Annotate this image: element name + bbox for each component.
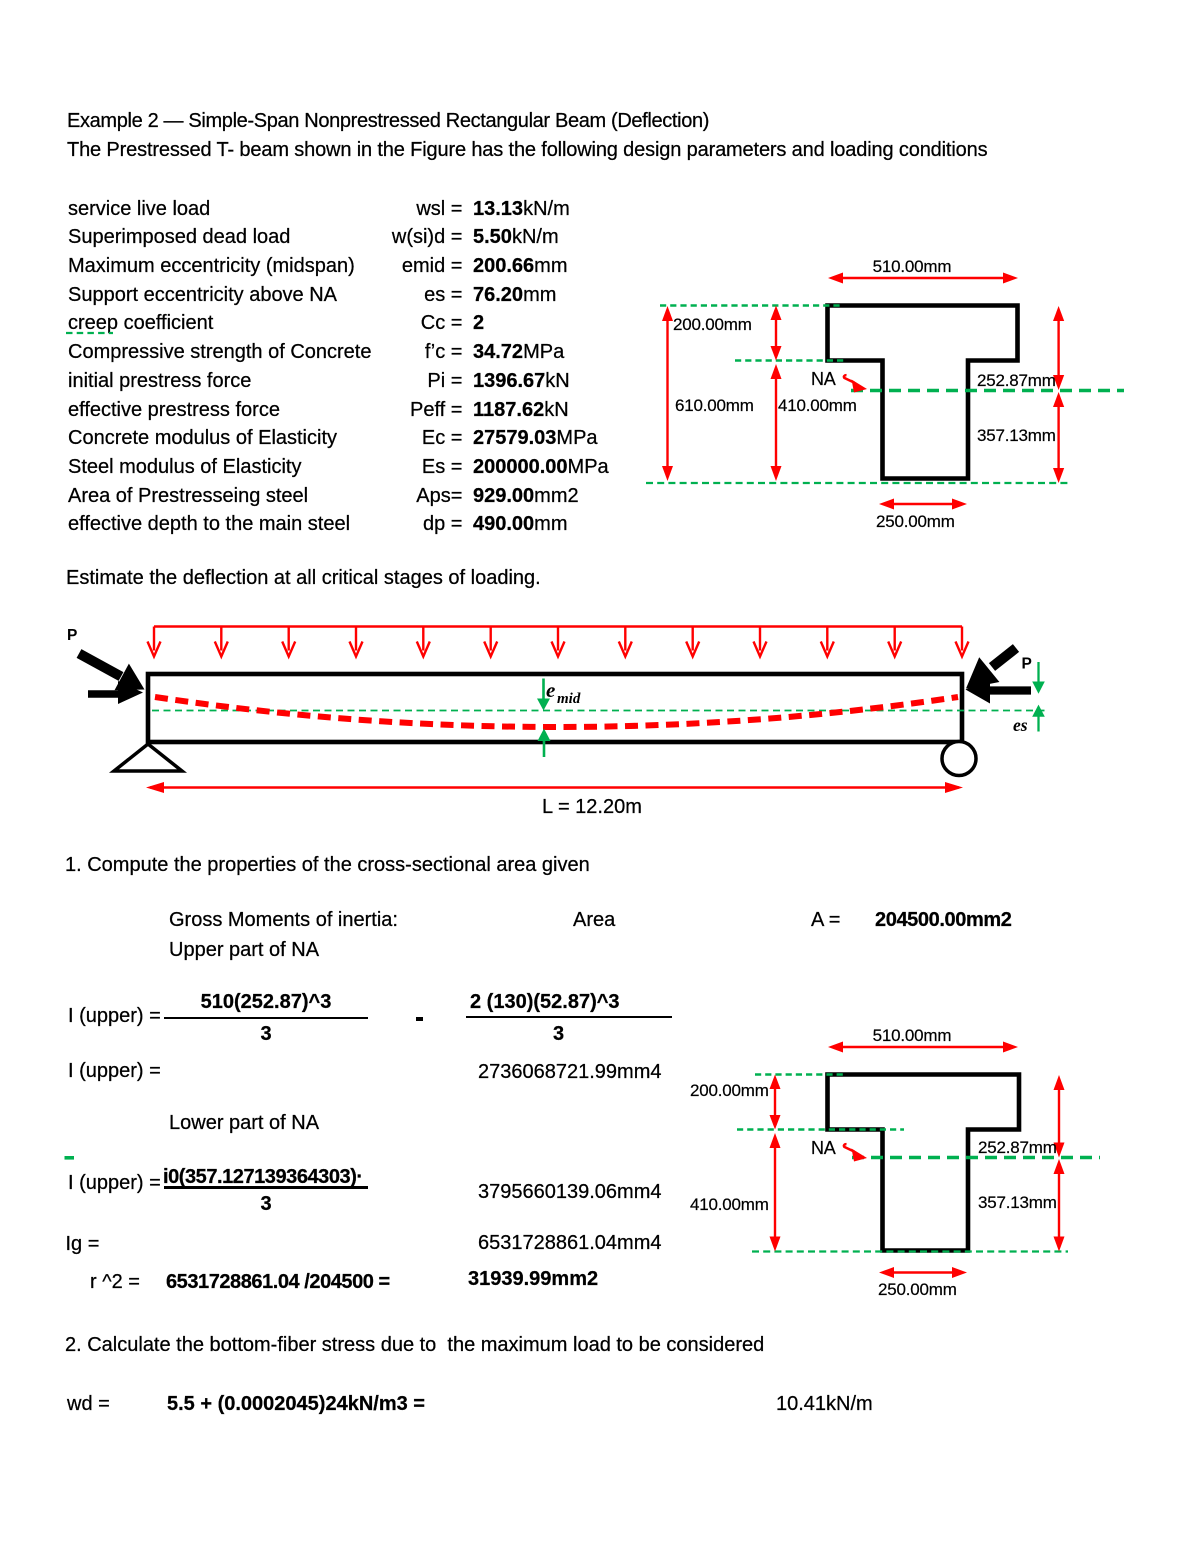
- svg-text:250.00mm: 250.00mm: [878, 1280, 957, 1299]
- svg-text:410.00mm: 410.00mm: [690, 1195, 769, 1214]
- svg-text:510.00mm: 510.00mm: [873, 257, 952, 276]
- svg-text:P: P: [1022, 656, 1032, 673]
- svg-text:357.13mm: 357.13mm: [977, 426, 1056, 445]
- svg-text:mid: mid: [557, 691, 581, 707]
- svg-text:610.00mm: 610.00mm: [675, 396, 754, 415]
- svg-text:250.00mm: 250.00mm: [876, 512, 955, 531]
- svg-text:200.00mm: 200.00mm: [673, 315, 752, 334]
- svg-text:NA: NA: [811, 1138, 836, 1158]
- svg-text:510.00mm: 510.00mm: [873, 1026, 952, 1045]
- svg-text:252.87mm: 252.87mm: [978, 1138, 1057, 1157]
- svg-text:200.00mm: 200.00mm: [690, 1081, 769, 1100]
- svg-text:es: es: [1013, 715, 1028, 735]
- svg-text:P: P: [67, 627, 77, 644]
- svg-text:e: e: [546, 678, 555, 702]
- svg-text:410.00mm: 410.00mm: [778, 396, 857, 415]
- svg-text:357.13mm: 357.13mm: [978, 1193, 1057, 1212]
- svg-text:NA: NA: [811, 369, 836, 389]
- svg-text:252.87mm: 252.87mm: [977, 371, 1056, 390]
